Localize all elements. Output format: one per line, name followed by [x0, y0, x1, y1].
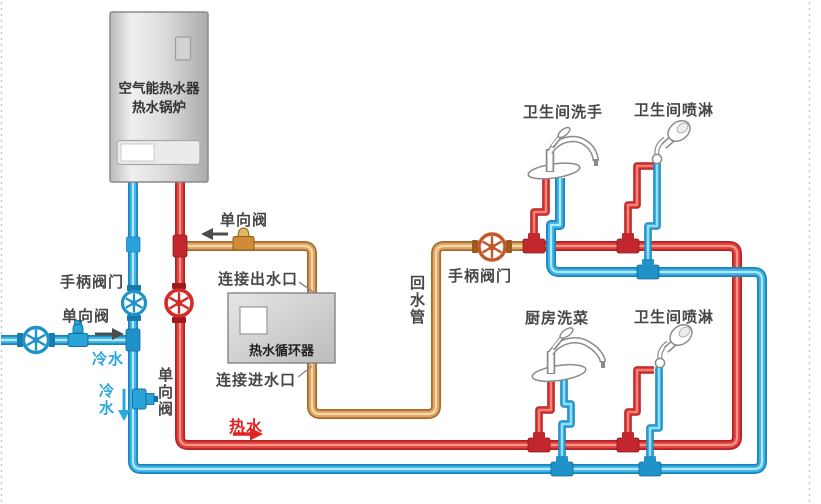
- boiler-label-line1: 空气能热水器: [110, 79, 208, 98]
- circulator-label: 热水循环器: [228, 340, 335, 359]
- handwheel-valve-icon-cold-inlet: [17, 328, 55, 353]
- handwheel-valve-icon-return: [472, 234, 512, 260]
- label-hot-water: 热水: [229, 413, 263, 437]
- boiler-label-line2: 热水锅炉: [110, 98, 208, 117]
- label-fixture-bath-shower-top: 卫生间喷淋: [634, 99, 714, 120]
- plumbing-diagram: 空气能热水器 热水锅炉 热水循环器 单向阀 手柄阀门 单向阀 冷水 冷水 单向阀…: [0, 0, 821, 504]
- boiler-label: 空气能热水器 热水锅炉: [110, 79, 208, 117]
- label-handle-valve-left: 手柄阀门: [60, 271, 124, 292]
- circulator-window: [240, 307, 267, 334]
- label-cold-water-inlet: 冷水: [92, 348, 124, 369]
- label-handle-valve-right: 手柄阀门: [448, 265, 512, 286]
- label-outlet-connection: 连接出水口: [218, 268, 298, 289]
- label-return-pipe: 回水管: [406, 275, 427, 326]
- shower-icon-bath-bottom: [655, 321, 696, 368]
- label-fixture-bath-sink: 卫生间洗手: [523, 101, 603, 122]
- hose-connector: [655, 358, 664, 367]
- check-valve-icon-return: [233, 228, 254, 250]
- hose-connector: [652, 154, 661, 163]
- label-check-valve-bottom: 单向阀: [154, 367, 175, 418]
- label-check-valve-top: 单向阀: [220, 209, 268, 230]
- label-cold-water-down: 冷水: [95, 383, 116, 417]
- label-fixture-kitchen-sink: 厨房洗菜: [525, 307, 589, 328]
- handwheel-valve-icon-cold-riser: [123, 285, 146, 321]
- display-window: [176, 37, 191, 60]
- diagram-canvas: [0, 0, 821, 504]
- shower-icon-bath-top: [652, 117, 694, 164]
- faucet-icon-kitchen: [531, 326, 603, 384]
- handwheel-valve-icon-hot-riser: [166, 283, 192, 323]
- label-inlet-connection: 连接进水口: [216, 369, 296, 390]
- panel-slot: [121, 144, 154, 161]
- label-check-valve-left: 单向阀: [62, 305, 110, 326]
- faucet-icon-bath-sink: [527, 126, 596, 182]
- label-fixture-bath-shower-bottom: 卫生间喷淋: [634, 306, 714, 327]
